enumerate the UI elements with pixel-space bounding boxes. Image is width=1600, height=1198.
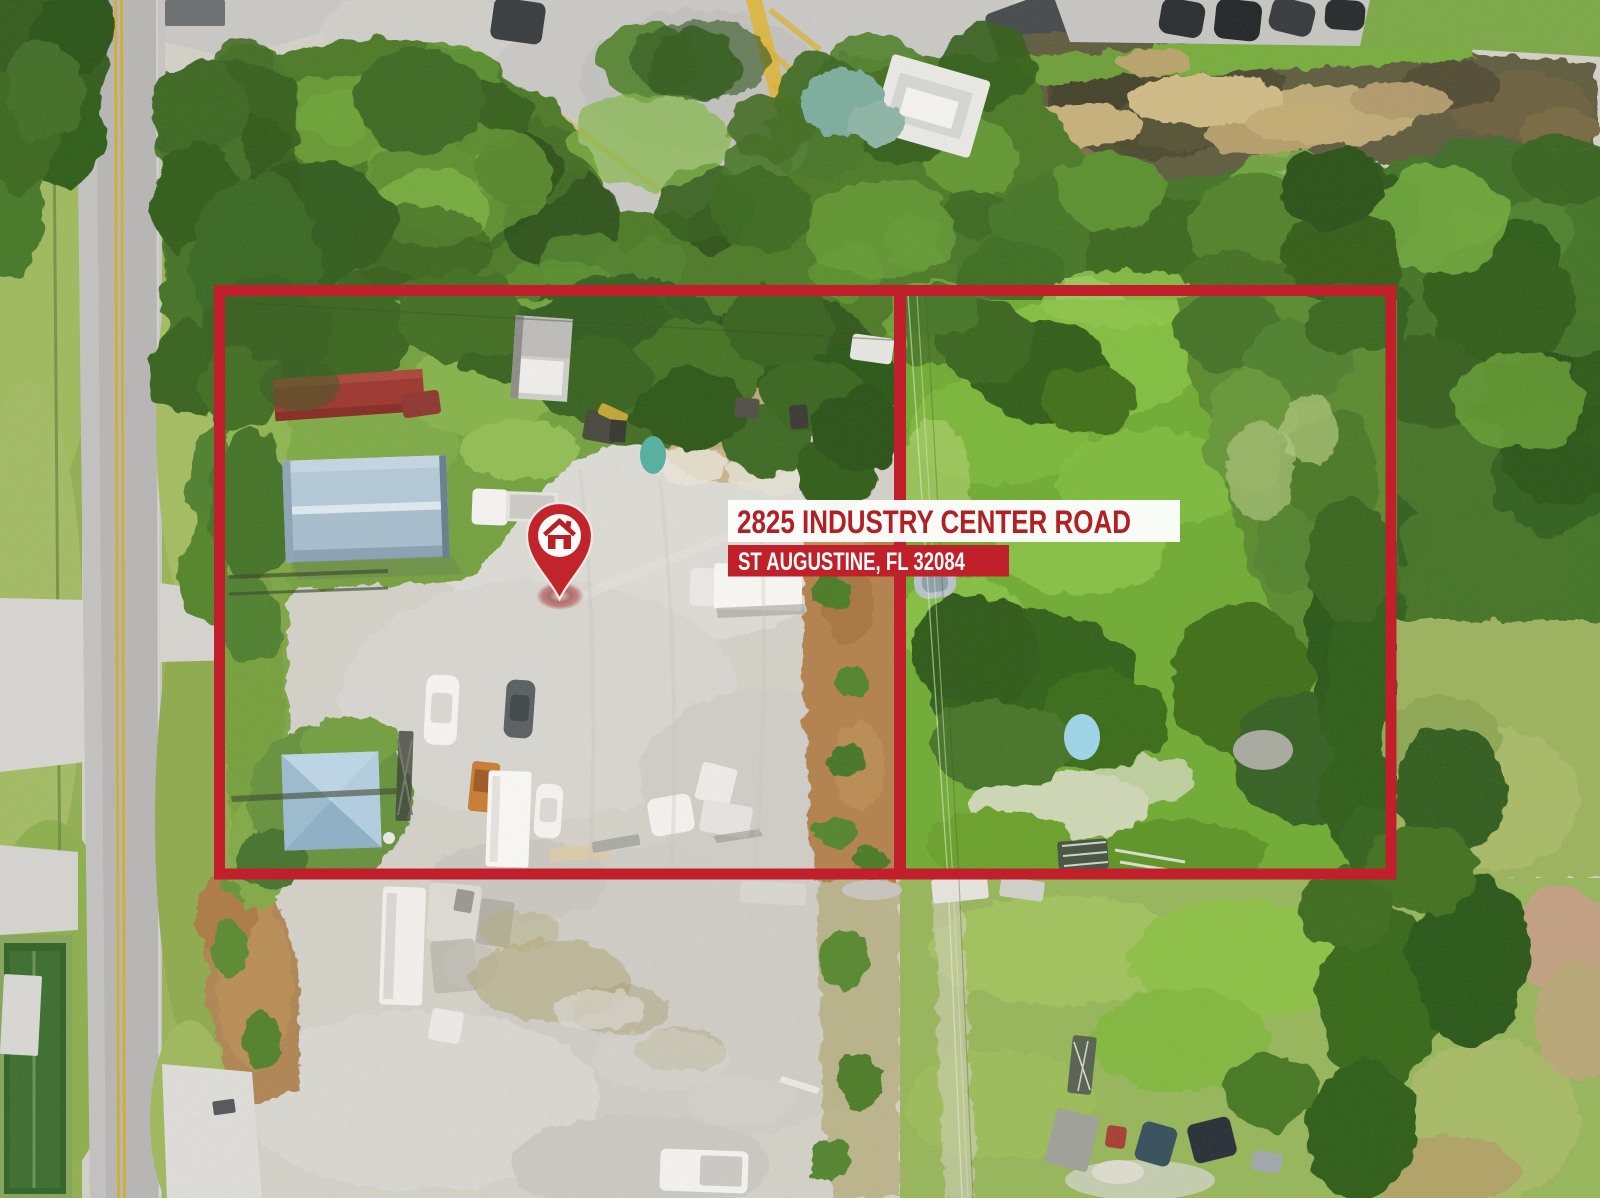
svg-text:ST AUGUSTINE, FL 32084: ST AUGUSTINE, FL 32084 xyxy=(738,548,965,576)
svg-text:2825 INDUSTRY CENTER ROAD: 2825 INDUSTRY CENTER ROAD xyxy=(737,504,1131,540)
